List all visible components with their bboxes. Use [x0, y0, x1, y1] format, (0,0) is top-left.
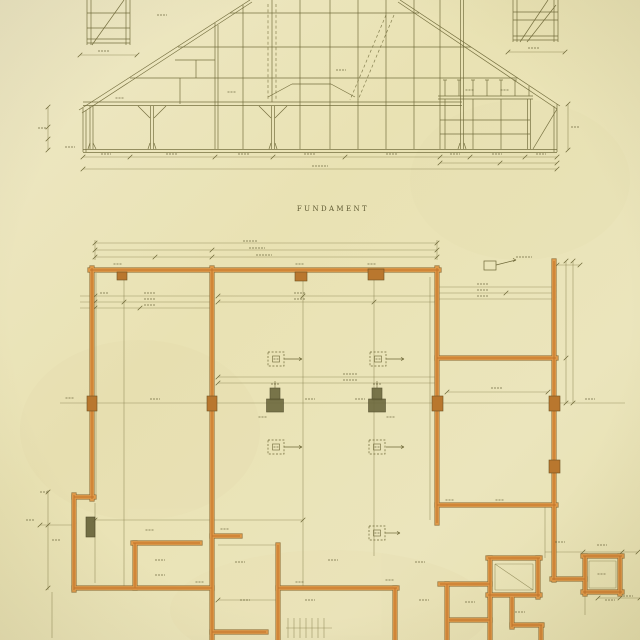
scanned-drawing-sheet: FUNDAMENT	[0, 0, 640, 640]
plan-title: FUNDAMENT	[297, 205, 369, 213]
blueprint-canvas	[0, 0, 640, 640]
